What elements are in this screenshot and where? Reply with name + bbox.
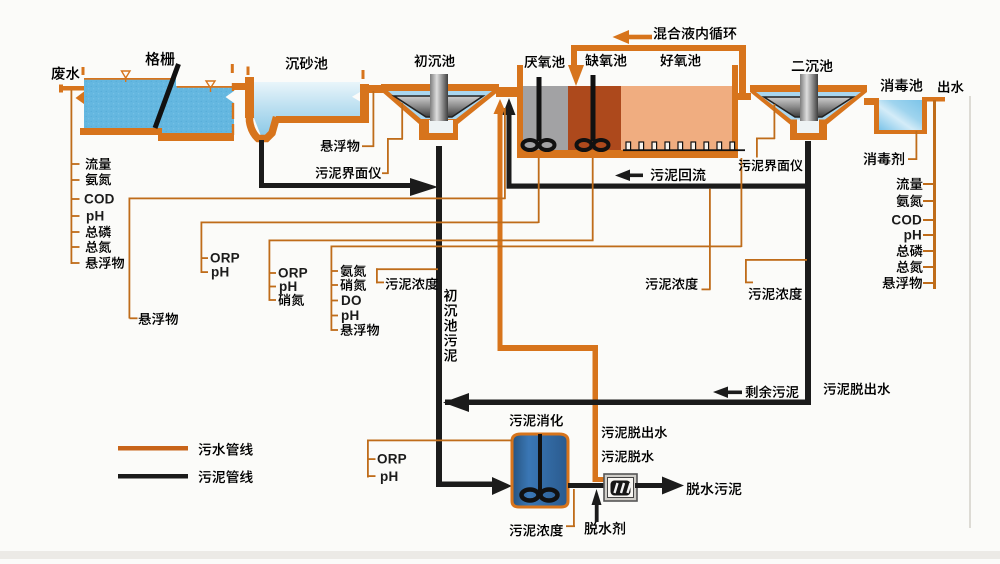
svg-text:DO: DO	[341, 293, 362, 308]
svg-text:pH: pH	[211, 265, 229, 280]
svg-text:pH: pH	[904, 228, 922, 243]
svg-text:pH: pH	[279, 279, 297, 294]
svg-text:pH: pH	[341, 308, 359, 323]
svg-text:COD: COD	[84, 192, 115, 207]
svg-text:ORP: ORP	[377, 452, 407, 467]
svg-text:pH: pH	[380, 469, 398, 484]
svg-text:COD: COD	[891, 213, 922, 228]
svg-text:ORP: ORP	[210, 251, 240, 266]
svg-text:pH: pH	[86, 209, 104, 224]
